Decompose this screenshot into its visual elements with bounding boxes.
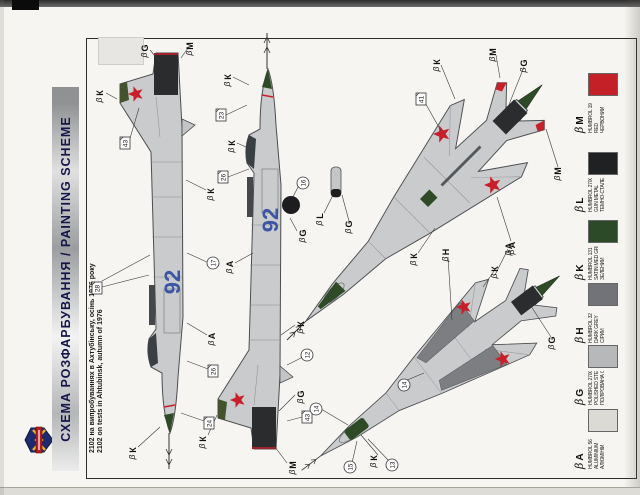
callout-letter: К xyxy=(206,188,216,194)
callout-letter: G xyxy=(140,44,150,51)
legend-entry-a: βA HUMBROL 56ALUMINIUMАЛЮМІНІЙ xyxy=(570,407,618,469)
legend-entry-g: βG HUMBROL 27003POLISHED STEELПОЛІРОВАНА… xyxy=(570,343,618,405)
svg-text:28: 28 xyxy=(95,285,102,293)
spare-part-tank xyxy=(331,167,341,197)
svg-text:14: 14 xyxy=(402,381,408,388)
svg-text:16: 16 xyxy=(301,179,307,186)
callout-letter: L xyxy=(315,213,325,219)
callout-letter: К xyxy=(95,90,105,96)
svg-text:17: 17 xyxy=(211,259,217,266)
callout-letter: К xyxy=(296,321,306,327)
svg-text:β: β xyxy=(487,56,497,62)
bort-number: 92 xyxy=(160,270,185,294)
callout-letter: К xyxy=(432,59,442,65)
callout-letter: А xyxy=(504,242,514,249)
svg-text:β: β xyxy=(226,147,236,153)
callout-letter: К xyxy=(369,455,379,461)
svg-text:β: β xyxy=(314,220,324,226)
brush-icon: β xyxy=(573,463,586,469)
svg-text:26: 26 xyxy=(211,368,218,376)
color-swatch xyxy=(588,283,618,306)
svg-text:43: 43 xyxy=(123,140,130,148)
color-swatch xyxy=(588,152,618,175)
legend-entry-l: βL HUMBROL 27004GUN METALТЕМНО-СТАЛЕВИЙ xyxy=(570,150,618,212)
callout-letter: К xyxy=(227,140,237,146)
svg-text:β: β xyxy=(139,52,149,58)
svg-text:β: β xyxy=(546,344,556,350)
legend-entry-k: βK HUMBROL 131SATIN MED GREENЗЕЛЕНИЙ xyxy=(570,218,618,280)
callout-letter: G xyxy=(344,220,354,227)
svg-text:β: β xyxy=(205,195,215,201)
scheme-drawings: 92 92 xyxy=(0,0,640,495)
callout-letter: К xyxy=(409,253,419,259)
svg-text:15: 15 xyxy=(348,463,354,470)
main-wheel xyxy=(282,196,300,214)
sheet-left-edge xyxy=(0,0,4,495)
svg-text:26: 26 xyxy=(221,174,228,182)
callout-letter: G xyxy=(298,229,308,236)
svg-text:β: β xyxy=(489,273,499,279)
callout-letter: А xyxy=(225,260,235,267)
color-swatch xyxy=(588,345,618,368)
color-swatch xyxy=(588,73,618,96)
brush-icon: β xyxy=(573,274,586,280)
page-fold-shadow xyxy=(624,0,640,495)
brush-icon: β xyxy=(573,399,586,405)
bottom-view xyxy=(274,240,586,495)
callout-letter: G xyxy=(296,390,306,397)
svg-text:41: 41 xyxy=(419,96,426,104)
bort-number: 92 xyxy=(258,208,283,232)
callout-letter: G xyxy=(519,59,529,66)
callout-letter: М xyxy=(185,42,195,50)
svg-text:β: β xyxy=(224,268,234,274)
brush-icon: β xyxy=(573,127,586,133)
svg-text:β: β xyxy=(408,260,418,266)
callout-letter: Н xyxy=(441,249,451,256)
side-view-port xyxy=(120,53,195,469)
svg-text:β: β xyxy=(518,67,528,73)
callout-letter: G xyxy=(547,336,557,343)
scanner-tab-mark xyxy=(12,0,39,10)
brush-icon: β xyxy=(573,206,586,212)
svg-text:13: 13 xyxy=(390,461,396,468)
callout-letter: М xyxy=(488,48,498,56)
callout-letter: М xyxy=(288,461,298,469)
callout-letter: К xyxy=(198,436,208,442)
side-view-starboard xyxy=(218,33,293,449)
svg-text:β: β xyxy=(431,66,441,72)
svg-text:β: β xyxy=(368,462,378,468)
svg-text:β: β xyxy=(127,454,137,460)
svg-text:β: β xyxy=(287,469,297,475)
svg-text:23: 23 xyxy=(219,112,226,120)
legend-entry-m: βM HUMBROL 19REDЧЕРВОНИЙ xyxy=(570,71,618,133)
svg-text:β: β xyxy=(222,81,232,87)
callout-letter: М xyxy=(553,167,563,175)
callout-letter: К xyxy=(490,266,500,272)
svg-text:β: β xyxy=(295,398,305,404)
svg-text:β: β xyxy=(184,50,194,56)
callout-letter: К xyxy=(128,447,138,453)
svg-text:β: β xyxy=(295,328,305,334)
svg-text:β: β xyxy=(343,228,353,234)
svg-text:43: 43 xyxy=(305,414,312,422)
svg-text:12: 12 xyxy=(305,351,311,358)
color-swatch xyxy=(588,220,618,243)
scanned-sheet: СХЕМА РОЗФАРБУВАННЯ / PAINTING SCHEME 21… xyxy=(0,0,640,495)
svg-text:β: β xyxy=(297,237,307,243)
scanner-edge-band xyxy=(0,0,640,7)
svg-text:24: 24 xyxy=(207,420,214,428)
svg-text:β: β xyxy=(206,340,216,346)
callout-letter: А xyxy=(207,332,217,339)
svg-text:14: 14 xyxy=(314,405,320,412)
color-swatch xyxy=(588,409,618,432)
svg-text:β: β xyxy=(94,97,104,103)
brush-icon: β xyxy=(573,337,586,343)
sheet-bottom-edge xyxy=(0,487,640,495)
svg-text:β: β xyxy=(197,443,207,449)
readable-content: СХЕМА РОЗФАРБУВАННЯ / PAINTING SCHEME 21… xyxy=(0,0,640,495)
svg-text:β: β xyxy=(552,175,562,181)
callout-letter: К xyxy=(223,74,233,80)
legend-entry-h: βH HUMBROL 32DARK GREYСІРИЙ xyxy=(570,281,618,343)
